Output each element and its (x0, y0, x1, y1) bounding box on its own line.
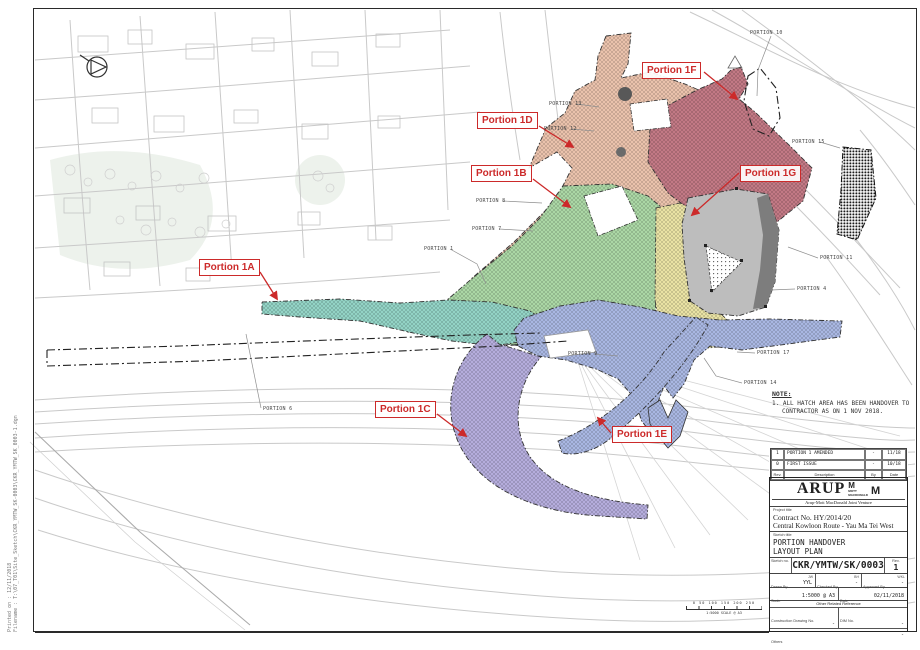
scale-bar-ticks (686, 606, 762, 610)
title-block-main: ARUP M MOTT MACDONALD M Arup-Mott MacDon… (769, 477, 908, 632)
dim-no-value: - (901, 621, 904, 627)
rev-number: 0 (771, 460, 784, 471)
north-arrow-icon (80, 55, 107, 77)
rev-by: - (865, 449, 882, 460)
project-name: Central Kowloon Route - Yau Ma Tei West (773, 522, 904, 531)
others-label: Others (771, 640, 782, 644)
construction-drawing-label: Construction Drawing No. (771, 619, 814, 623)
company-logo: ARUP M MOTT MACDONALD M Arup-Mott MacDon… (770, 478, 907, 507)
note-title: NOTE: (772, 390, 918, 398)
rev-date: 11/18 (882, 449, 906, 460)
approved-by-value: - (901, 580, 904, 586)
arup-logo-text: ARUP (797, 481, 845, 497)
joint-venture-text: Arup-Mott MacDonald Joint Venture (772, 499, 905, 506)
park-areas (50, 151, 345, 269)
rev-value: 1 (886, 563, 906, 572)
contract-number: Contract No. HY/2014/20 (773, 513, 904, 522)
scale-bar: 0 50 100 150 200 250 1:5000 SCALE @ A3 (684, 601, 764, 615)
scale-bar-numbers: 0 50 100 150 200 250 (684, 601, 764, 605)
checked-by-value: - (855, 580, 858, 586)
rev-by: - (865, 460, 882, 471)
sketch-title-line-2: LAYOUT PLAN (773, 547, 904, 556)
drawing-sheet: Printed on : 12/11/2018 Filename : T:\07… (0, 0, 920, 650)
sketch-title-line-1: PORTION HANDOVER (773, 538, 904, 547)
zone-portion-1a (262, 299, 546, 346)
shoreline (30, 432, 250, 630)
scale-value: 1:5000 @ A3 (802, 593, 835, 599)
sketch-number: CKR/YMTW/SK/0003 (792, 558, 884, 574)
macdonald-text: MACDONALD (848, 494, 868, 498)
scale-bar-caption: 1:5000 SCALE @ A3 (684, 611, 764, 615)
rev-description: PORTION 1 AMENDED (784, 449, 865, 460)
rev-date: 10/18 (882, 460, 906, 471)
rev-number: 1 (771, 449, 784, 460)
signatories-section: Drawn By JW YYL Checked By BH - Approved… (770, 574, 907, 588)
scale-date-section: Scale 1:5000 @ A3 Date 02/11/2018 (770, 588, 907, 601)
drawn-by-sub: JW (808, 575, 813, 579)
print-info-vertical-text: Printed on : 12/11/2018 Filename : T:\07… (7, 415, 19, 632)
dim-no-label: DIM No. (840, 619, 854, 623)
other-reference-header: Other Related Reference (770, 601, 907, 608)
macdonald-m-icon: M (871, 486, 880, 497)
sketch-title-section: Sketch title PORTION HANDOVER LAYOUT PLA… (770, 532, 907, 558)
note-line-1: 1. ALL HATCH AREA HAS BEEN HANDOVER TO (772, 400, 918, 408)
zone-portion-15-stipple (837, 147, 876, 240)
zone-portion-1e (514, 300, 842, 448)
date-value: 02/11/2018 (874, 593, 904, 599)
sketch-no-label: Sketch no. (770, 558, 792, 574)
others-value: - (901, 632, 904, 638)
note-line-2: CONTRACTOR AS ON 1 NOV 2018. (782, 408, 918, 416)
approved-by-sub: WKL (897, 575, 905, 579)
title-block: 1 PORTION 1 AMENDED - 11/18 0 FIRST ISSU… (769, 448, 908, 632)
zone-portion-4-gray (682, 187, 779, 316)
project-title-section: Project title Contract No. HY/2014/20 Ce… (770, 507, 907, 532)
rev-description: FIRST ISSUE (784, 460, 865, 471)
note-block: NOTE: 1. ALL HATCH AREA HAS BEEN HANDOVE… (772, 390, 918, 415)
drawn-by-value: YYL (803, 580, 812, 586)
filename-text: Filename : T:\07_T01\Site_Sketch\CKR_YMT… (13, 415, 19, 632)
checked-by-sub: BH (854, 575, 859, 579)
other-reference-section: Other Related Reference Construction Dra… (770, 601, 907, 639)
sketch-number-section: Sketch no. CKR/YMTW/SK/0003 Rev. 1 (770, 558, 907, 575)
construction-drawing-value: - (832, 621, 835, 627)
